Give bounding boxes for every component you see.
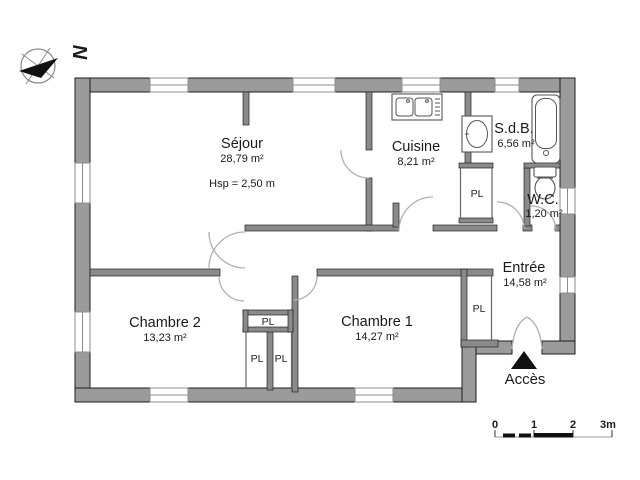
window (150, 78, 188, 92)
entree-front-wall-right (542, 341, 575, 354)
closet-label-hall-top: PL (262, 316, 275, 328)
window (355, 388, 393, 402)
room-label-sejour: Séjour (221, 136, 263, 152)
window (150, 388, 188, 402)
room-label-cuisine: Cuisine (392, 139, 440, 155)
chambre-divider-wall (267, 331, 273, 390)
closet-label-cuisine: PL (471, 188, 484, 200)
cuisine-door-stub (393, 203, 399, 227)
window (402, 78, 440, 92)
room-area-wc: 1,20 m² (525, 208, 563, 220)
room-area-sejour: 28,79 m² (220, 153, 264, 165)
exterior-wall-left (75, 78, 90, 402)
hall-wall-right (433, 225, 497, 231)
scale-label-3m: 3m (600, 419, 616, 431)
room-area-chambre1: 14,27 m² (355, 331, 399, 343)
floor-plan-canvas: N Séjour 28,79 m² Hsp = 2,50 m Cuisine 8… (0, 0, 640, 480)
window (293, 78, 335, 92)
window (495, 78, 519, 92)
floor-plan: N Séjour 28,79 m² Hsp = 2,50 m Cuisine 8… (0, 0, 640, 480)
room-label-entree: Entrée (503, 260, 546, 276)
room-label-sdb: S.d.B. (494, 121, 534, 137)
ceiling-height-note: Hsp = 2,50 m (209, 178, 275, 190)
hall-closet-cap (243, 310, 248, 332)
sejour-cuisine-wall-lower (366, 178, 372, 231)
washbasin-icon (462, 116, 492, 152)
exterior-wall-bottom (75, 388, 476, 402)
room-area-entree: 14,58 m² (503, 277, 547, 289)
cuisine-closet-cap (459, 163, 493, 168)
scale-label-1: 1 (531, 419, 537, 431)
chambre1-right-wall (461, 269, 467, 347)
bathtub-icon (532, 95, 560, 163)
background (0, 0, 640, 480)
entree-corner-wall (462, 341, 476, 402)
window (75, 163, 90, 203)
room-label-chambre1: Chambre 1 (341, 314, 413, 330)
room-area-sdb: 6,56 m² (497, 138, 535, 150)
hall-closet-cap (288, 310, 293, 332)
room-area-chambre2: 13,23 m² (143, 332, 187, 344)
room-area-cuisine: 8,21 m² (397, 156, 435, 168)
scale-dash (519, 434, 531, 438)
scale-dash (503, 434, 515, 438)
access-label: Accès (505, 371, 546, 388)
sejour-cuisine-wall-upper (366, 92, 372, 150)
hall-wall-left (245, 225, 399, 231)
chambre2-top-wall (90, 269, 220, 276)
scale-solid-segment (534, 433, 573, 438)
closet-label-entree: PL (473, 303, 486, 315)
cuisine-closet-cap (459, 218, 493, 223)
north-label: N (68, 45, 90, 60)
hall-closet-cap (243, 310, 293, 315)
room-label-chambre2: Chambre 2 (129, 315, 201, 331)
closet-label-hall-left: PL (251, 353, 264, 365)
chambre1-left-wall (292, 276, 298, 392)
scale-label-0: 0 (492, 419, 498, 431)
kitchen-sink-icon (392, 94, 442, 120)
entree-closet-bottom-wall (461, 340, 498, 347)
window (75, 312, 90, 352)
sejour-pillar-wall (243, 92, 249, 125)
room-label-wc: W.C. (527, 192, 558, 208)
scale-label-2: 2 (570, 419, 576, 431)
window (560, 277, 575, 293)
closet-label-hall-right: PL (275, 353, 288, 365)
